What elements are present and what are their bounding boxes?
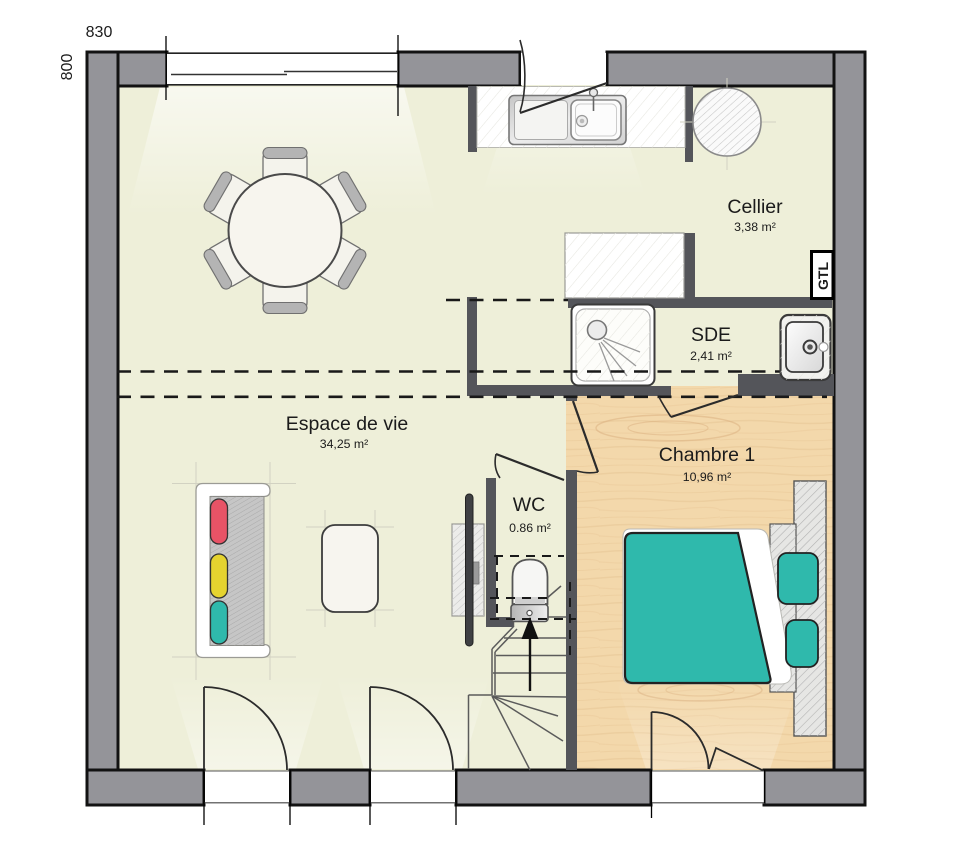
svg-text:0.86 m²: 0.86 m² [509,521,551,535]
svg-text:10,96 m²: 10,96 m² [683,470,732,484]
svg-text:3,38 m²: 3,38 m² [734,220,776,234]
svg-text:830: 830 [86,24,113,41]
svg-text:800: 800 [59,54,76,81]
svg-text:Cellier: Cellier [727,196,783,218]
svg-text:WC: WC [513,494,546,516]
svg-text:34,25 m²: 34,25 m² [320,437,369,451]
svg-text:GTL: GTL [815,262,831,290]
svg-text:2,41 m²: 2,41 m² [690,349,732,363]
svg-text:SDE: SDE [691,324,731,346]
svg-text:Espace de vie: Espace de vie [286,413,409,435]
svg-text:Chambre 1: Chambre 1 [659,444,755,466]
